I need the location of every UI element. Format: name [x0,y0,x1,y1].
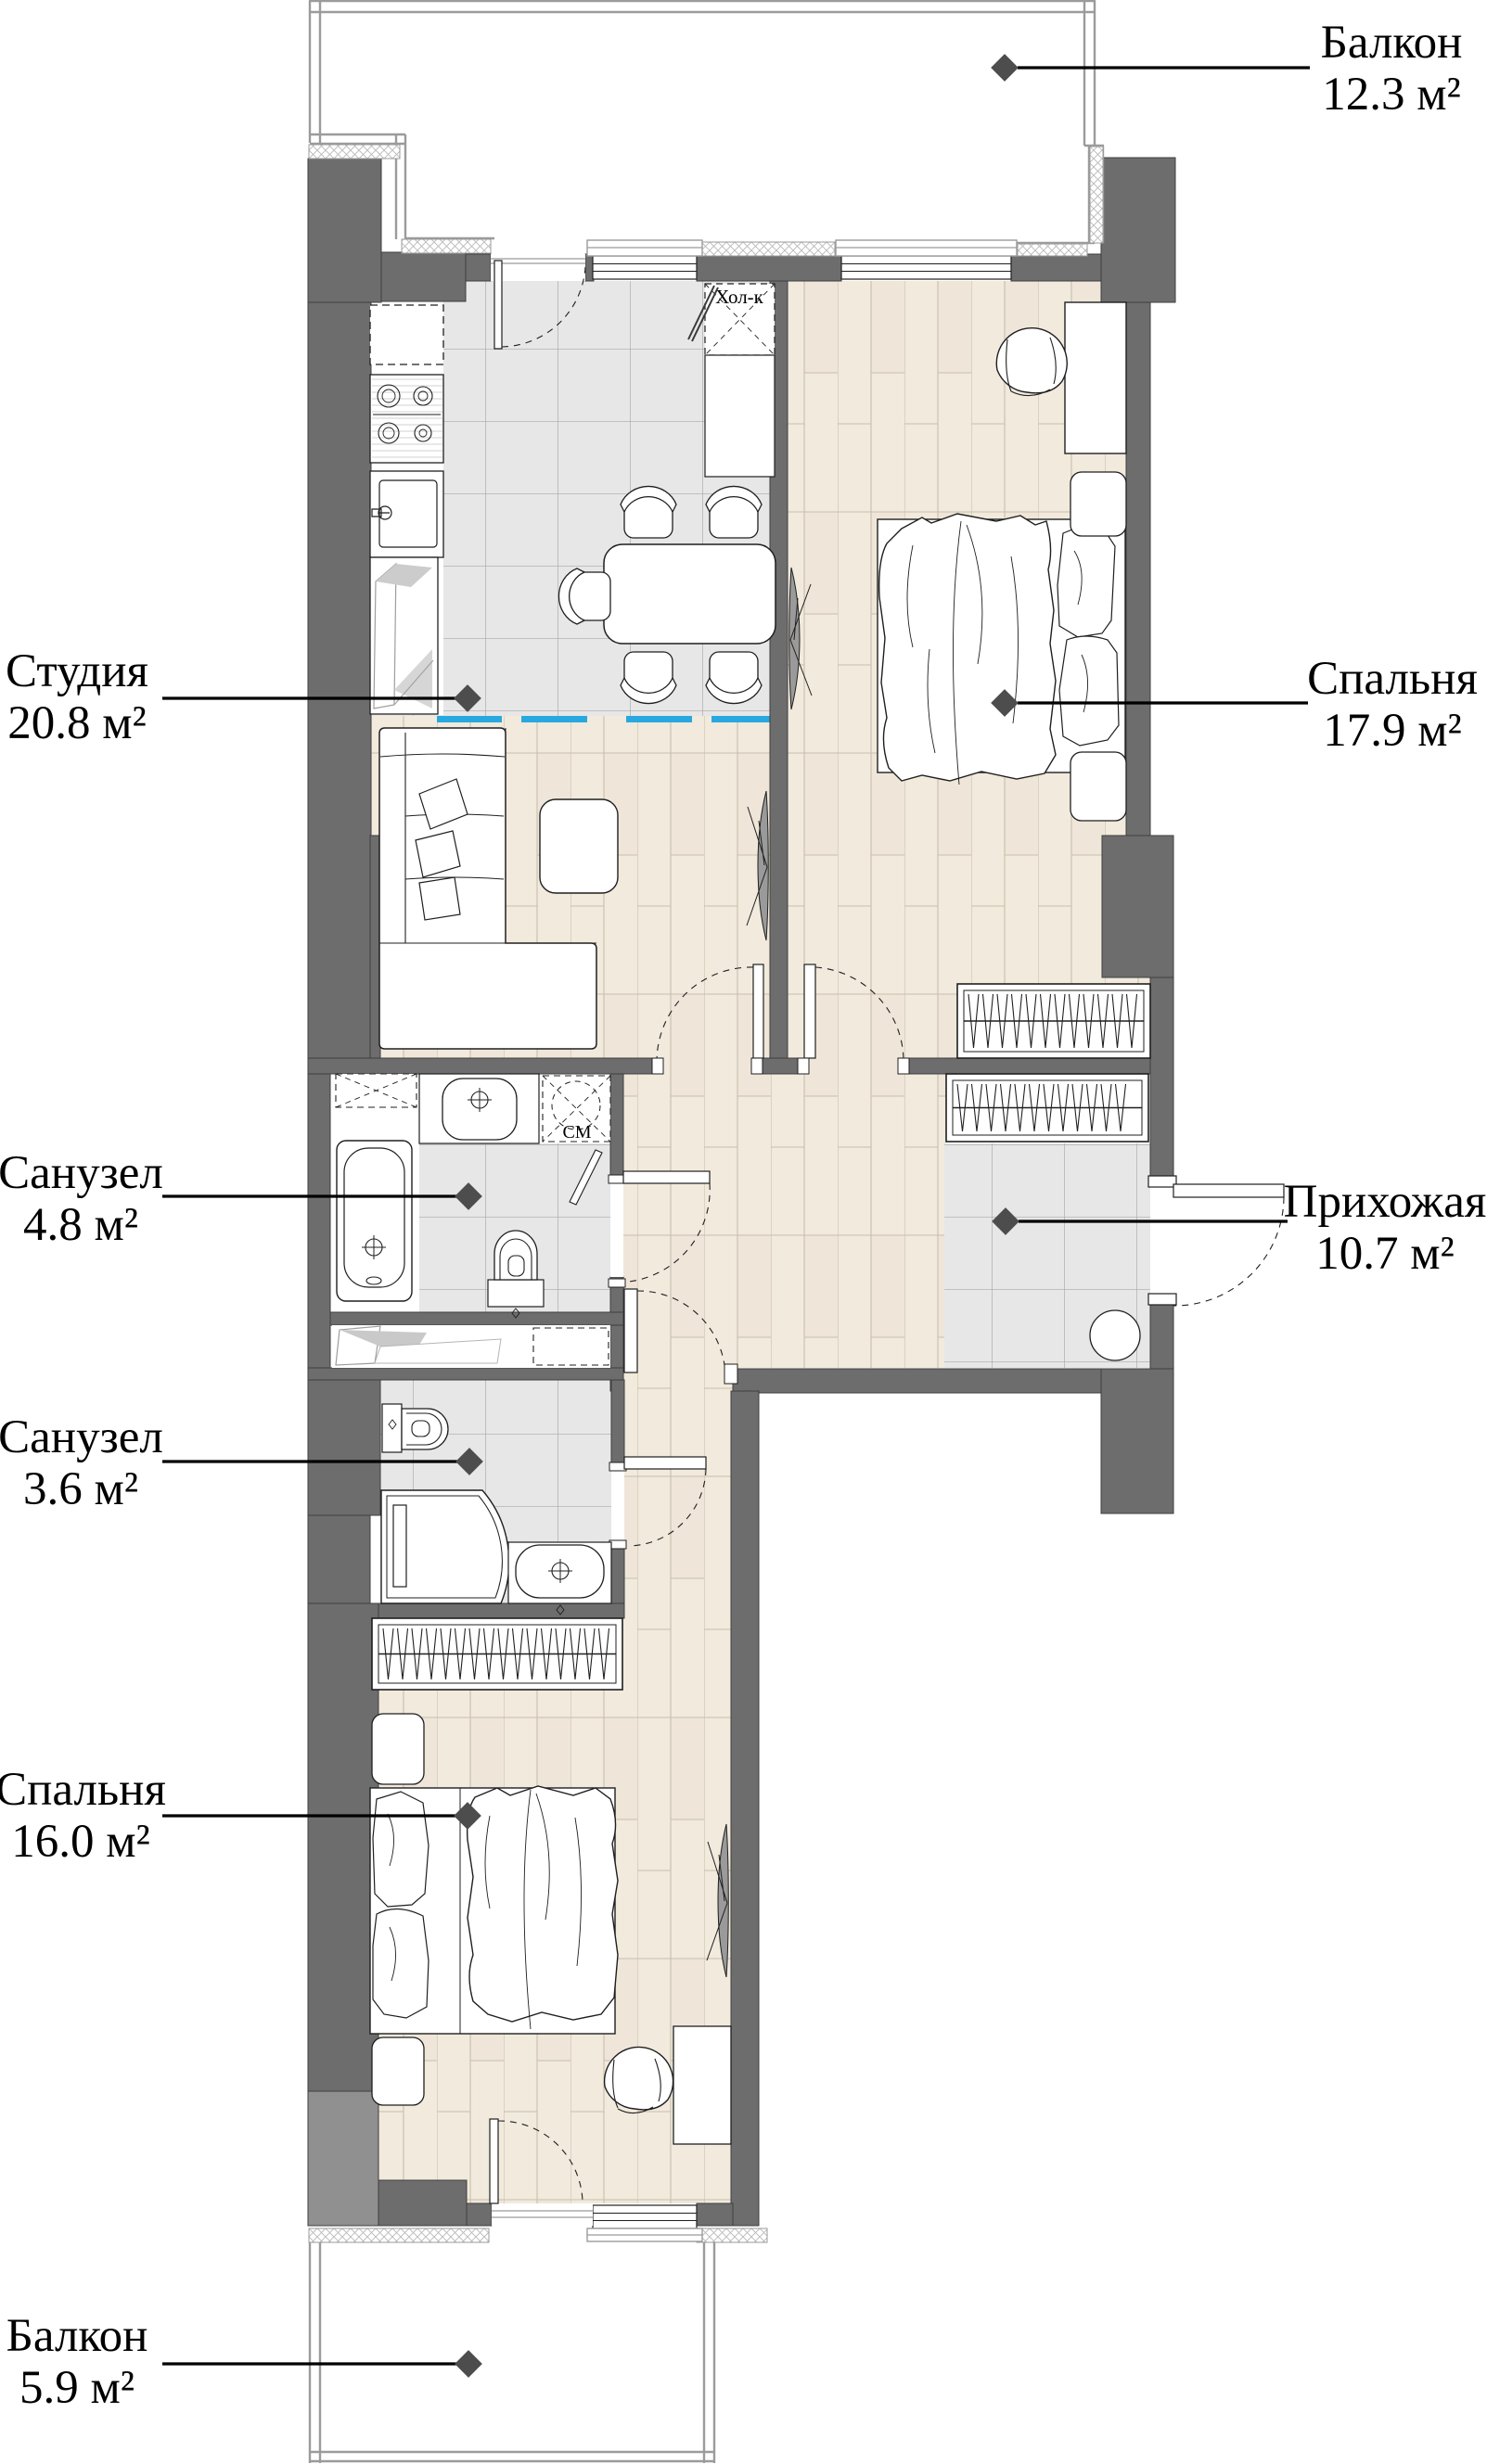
svg-text:5.9 м²: 5.9 м² [19,2362,135,2414]
svg-text:20.8 м²: 20.8 м² [7,697,147,749]
svg-text:Спальня: Спальня [1307,653,1478,705]
svg-text:12.3 м²: 12.3 м² [1322,69,1461,121]
svg-text:17.9 м²: 17.9 м² [1323,705,1462,757]
svg-text:4.8 м²: 4.8 м² [23,1199,138,1251]
svg-text:16.0 м²: 16.0 м² [11,1816,150,1868]
svg-text:Хол-к: Хол-к [715,286,764,308]
svg-text:Балкон: Балкон [6,2310,148,2362]
svg-text:10.7 м²: 10.7 м² [1315,1228,1455,1280]
svg-text:3.6 м²: 3.6 м² [23,1463,138,1515]
svg-text:Спальня: Спальня [0,1764,166,1816]
svg-text:Прихожая: Прихожая [1284,1176,1487,1228]
svg-text:Балкон: Балкон [1321,17,1463,69]
svg-text:Санузел: Санузел [0,1147,163,1199]
svg-text:Санузел: Санузел [0,1411,163,1463]
svg-text:Студия: Студия [6,645,148,697]
svg-text:СМ: СМ [562,1122,591,1143]
